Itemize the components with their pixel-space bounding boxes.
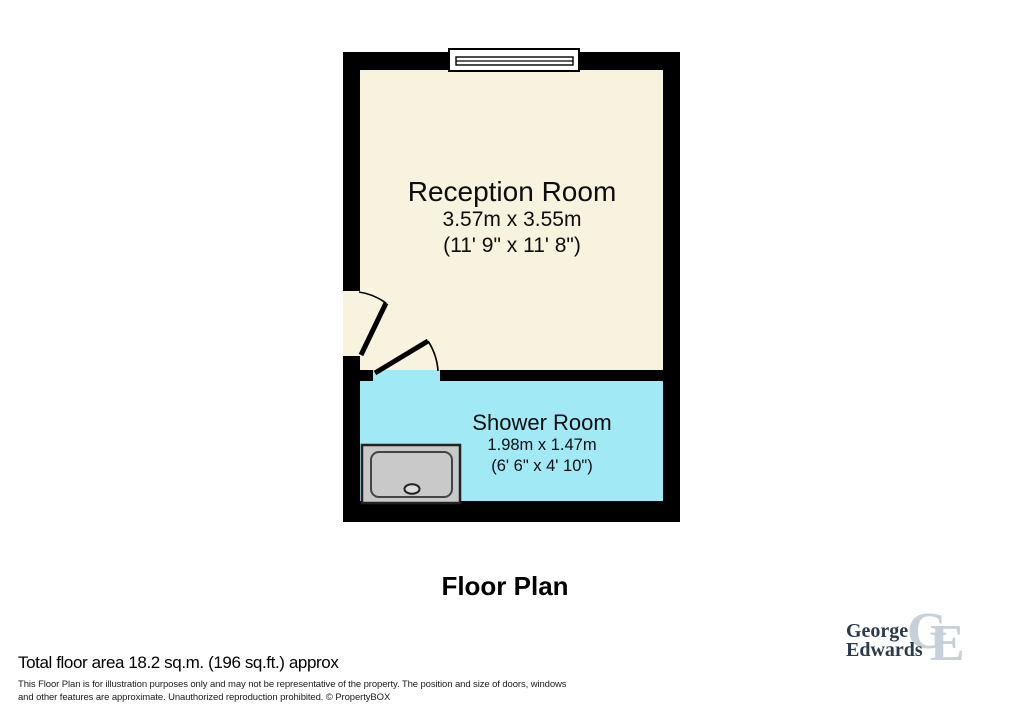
shower-tray-icon — [362, 445, 460, 503]
shower-room-label: Shower Room 1.98m x 1.47m (6' 6" x 4' 10… — [472, 410, 611, 477]
floor-plan-title: Floor Plan — [441, 571, 568, 602]
total-floor-area: Total floor area 18.2 sq.m. (196 sq.ft.)… — [18, 653, 338, 673]
shower-room-name: Shower Room — [472, 410, 611, 435]
entry-door-opening — [343, 291, 360, 356]
logo-monogram-e-icon: E — [930, 618, 965, 670]
george-edwards-logo: G E George Edwards — [843, 612, 968, 670]
floorplan-page: Reception Room 3.57m x 3.55m (11' 9" x 1… — [0, 0, 1024, 716]
disclaimer-line-2: and other features are approximate. Unau… — [18, 692, 566, 705]
logo-word-george: George — [846, 621, 908, 641]
window-frame — [449, 49, 579, 71]
reception-room-dimensions-metric: 3.57m x 3.55m — [408, 207, 617, 233]
shower-room-dimensions-imperial: (6' 6" x 4' 10") — [472, 456, 611, 477]
disclaimer: This Floor Plan is for illustration purp… — [18, 679, 566, 704]
floorplan-drawing — [0, 0, 1024, 716]
logo-word-edwards: Edwards — [846, 640, 923, 660]
window-icon — [449, 49, 579, 71]
shower-drain — [405, 484, 420, 494]
shower-room-dimensions-metric: 1.98m x 1.47m — [472, 435, 611, 456]
reception-room-name: Reception Room — [408, 176, 617, 207]
reception-room-label: Reception Room 3.57m x 3.55m (11' 9" x 1… — [408, 176, 617, 259]
disclaimer-line-1: This Floor Plan is for illustration purp… — [18, 679, 566, 692]
shower-door-opening — [373, 370, 440, 381]
reception-room-dimensions-imperial: (11' 9" x 11' 8") — [408, 233, 617, 259]
